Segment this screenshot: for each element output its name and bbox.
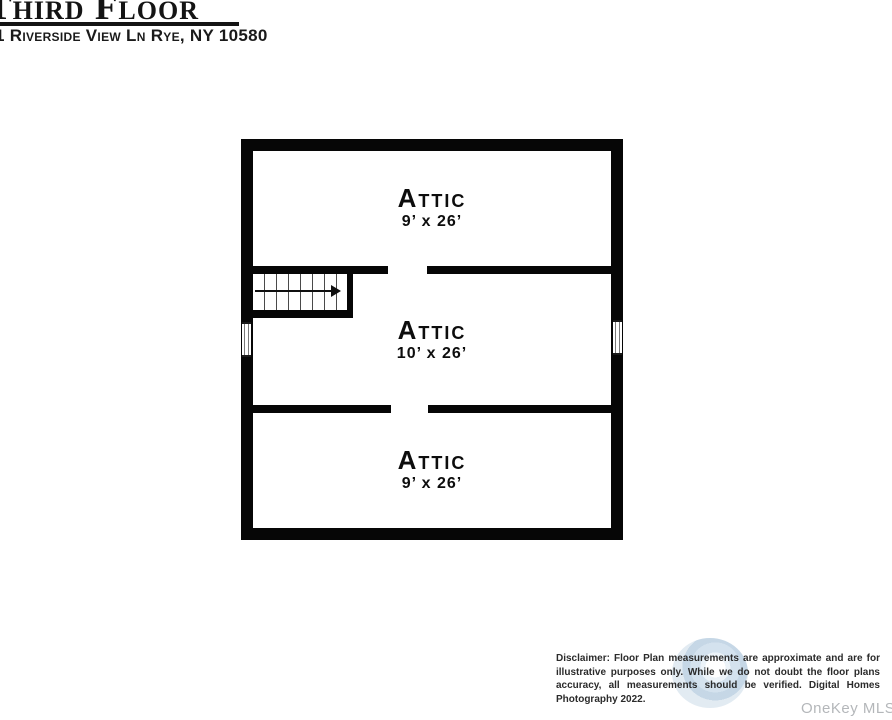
room-dimensions: 9’ x 26’	[253, 214, 611, 230]
room-label-attic-middle: Attic 10’ x 26’	[253, 317, 611, 362]
interior-wall-2-right-segment	[428, 405, 611, 413]
property-address: 1 Riverside View Ln Rye, NY 10580	[0, 26, 268, 46]
room-label-attic-bottom: Attic 9’ x 26’	[253, 447, 611, 492]
stair-direction-arrow-icon	[255, 290, 331, 292]
interior-wall-2-left-segment	[253, 405, 391, 413]
interior-wall-1-left-segment	[253, 266, 388, 274]
page: Third Floor 1 Riverside View Ln Rye, NY …	[0, 0, 892, 720]
onekey-mls-watermark-text: OneKey MLS	[801, 700, 892, 717]
room-name: Attic	[253, 317, 611, 343]
window-right	[613, 320, 622, 355]
window-left	[242, 322, 251, 357]
room-dimensions: 9’ x 26’	[253, 476, 611, 492]
floor-plan: Attic 9’ x 26’ Attic 10’ x 26’ Attic 9’ …	[241, 139, 623, 540]
disclaimer-text: Disclaimer: Floor Plan measurements are …	[556, 652, 880, 706]
room-dimensions: 10’ x 26’	[253, 346, 611, 362]
interior-wall-1-right-segment	[427, 266, 611, 274]
room-name: Attic	[253, 447, 611, 473]
room-name: Attic	[253, 185, 611, 211]
staircase	[253, 274, 353, 318]
room-label-attic-top: Attic 9’ x 26’	[253, 185, 611, 230]
